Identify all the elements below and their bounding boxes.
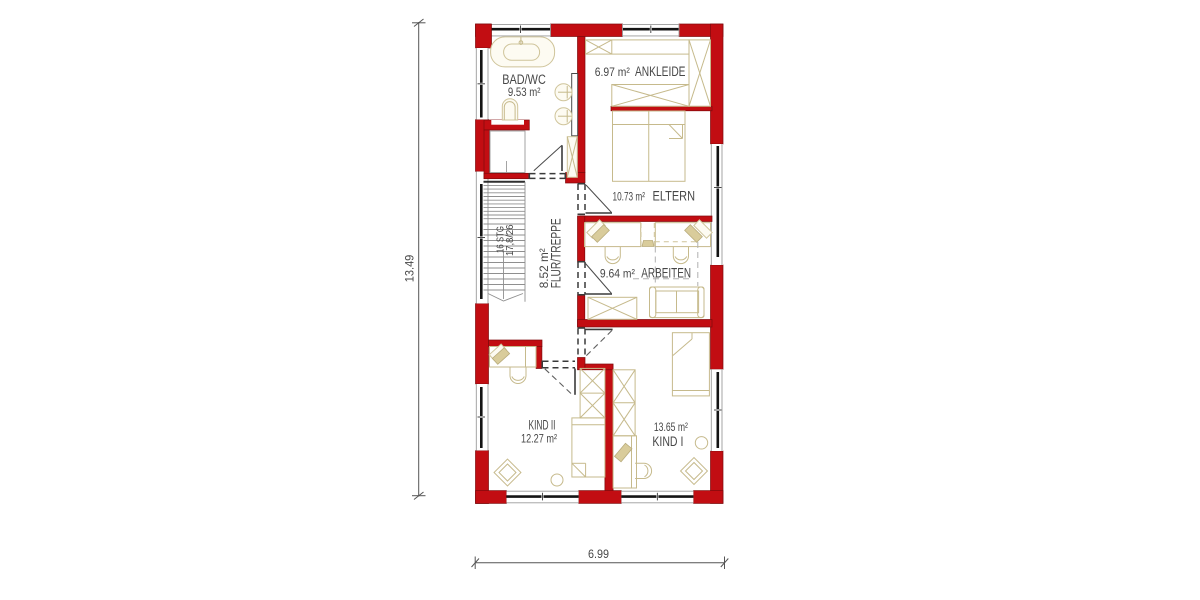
svg-text:FLUR/TREPPE: FLUR/TREPPE bbox=[549, 218, 564, 288]
svg-text:17,8/26: 17,8/26 bbox=[505, 224, 516, 256]
svg-text:12.27 m²: 12.27 m² bbox=[521, 432, 557, 446]
svg-text:KIND I: KIND I bbox=[652, 434, 683, 449]
svg-text:13.49: 13.49 bbox=[405, 255, 417, 283]
svg-text:9.64 m²: 9.64 m² bbox=[600, 267, 635, 281]
svg-text:KIND II: KIND II bbox=[529, 418, 556, 433]
svg-text:6.99: 6.99 bbox=[588, 549, 609, 561]
svg-text:ANKLEIDE: ANKLEIDE bbox=[635, 64, 686, 79]
svg-text:9.53 m²: 9.53 m² bbox=[508, 85, 541, 99]
svg-text:10.73 m²: 10.73 m² bbox=[613, 190, 646, 204]
svg-text:6.97 m²: 6.97 m² bbox=[595, 65, 630, 79]
svg-text:13.65 m²: 13.65 m² bbox=[654, 420, 688, 434]
svg-text:ARBEITEN: ARBEITEN bbox=[641, 266, 691, 281]
svg-text:ELTERN: ELTERN bbox=[653, 189, 696, 204]
